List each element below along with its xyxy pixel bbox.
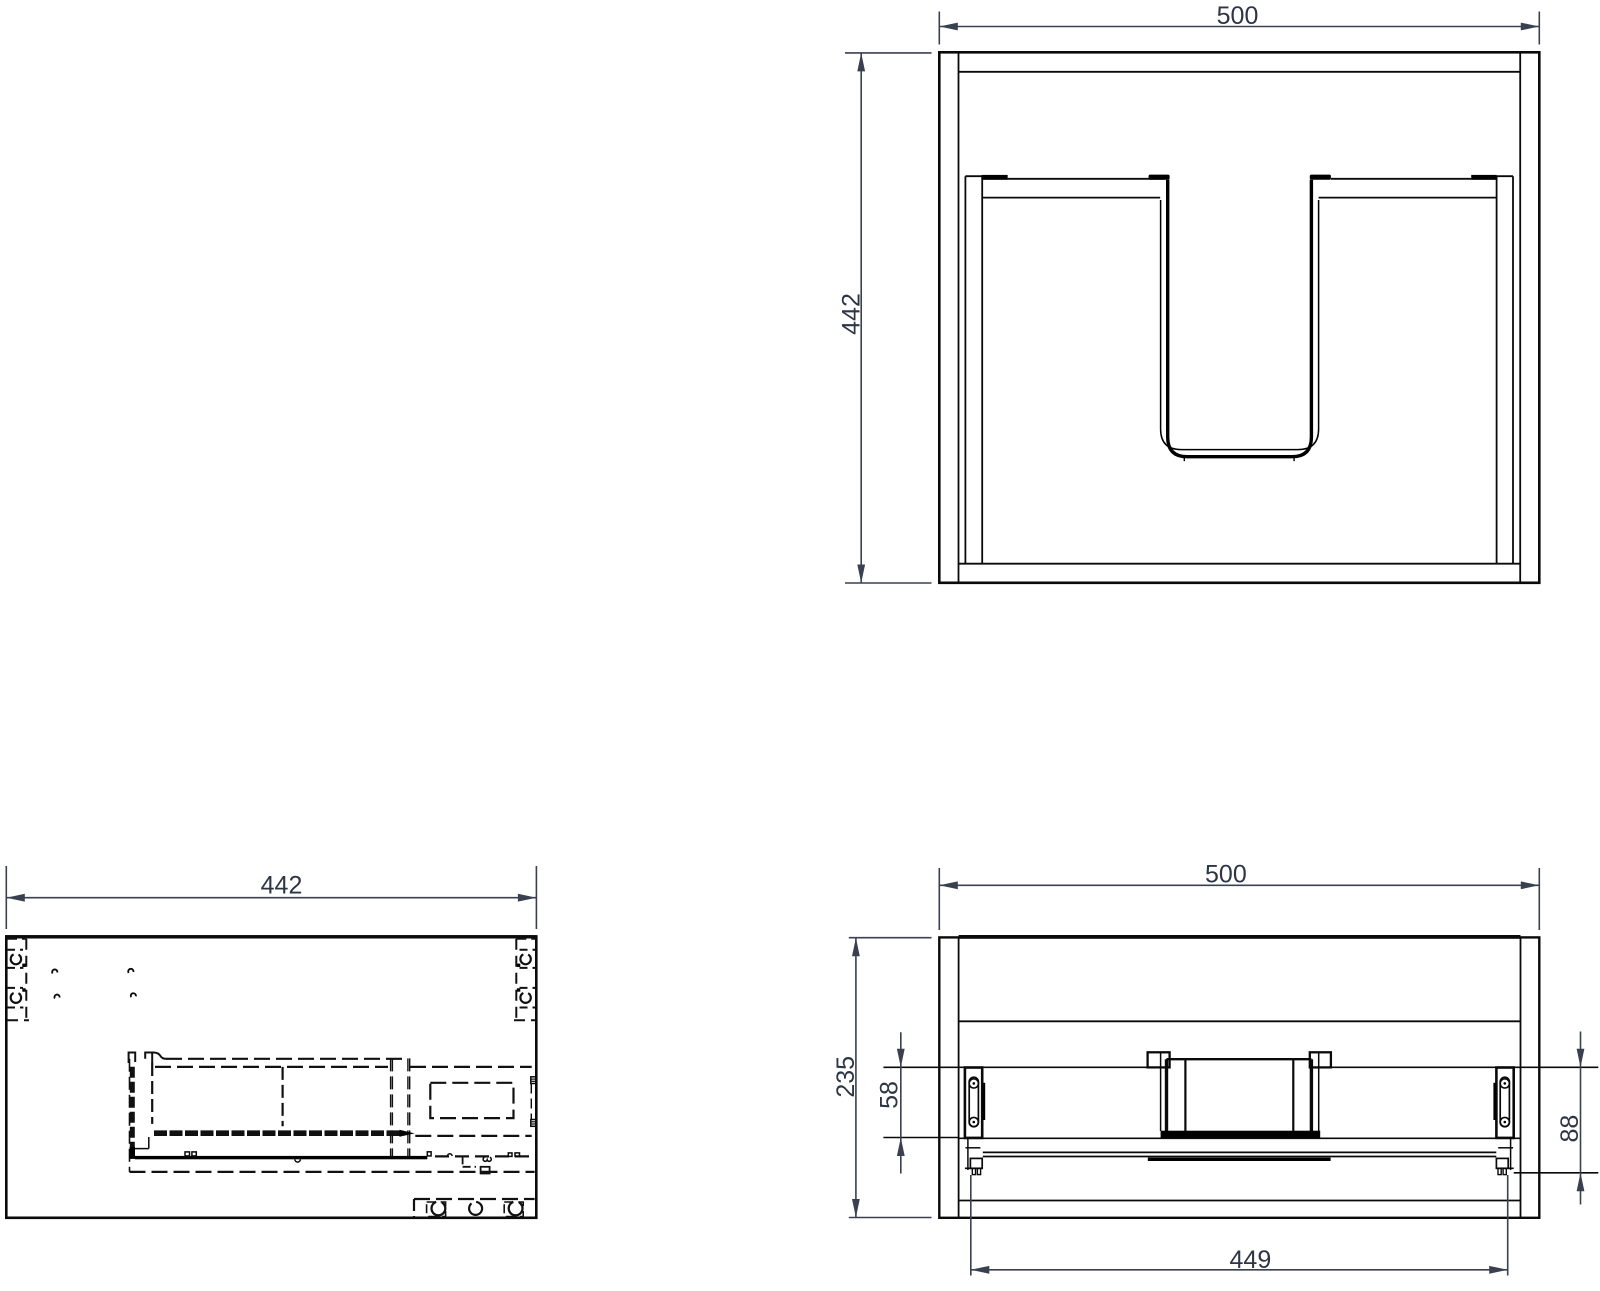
svg-text:442: 442 xyxy=(261,872,303,900)
svg-text:88: 88 xyxy=(1556,1115,1584,1143)
svg-text:442: 442 xyxy=(837,293,865,335)
svg-text:500: 500 xyxy=(1217,2,1259,30)
svg-text:500: 500 xyxy=(1205,861,1247,889)
svg-text:235: 235 xyxy=(832,1056,860,1098)
svg-text:449: 449 xyxy=(1230,1246,1272,1274)
svg-text:58: 58 xyxy=(875,1081,903,1109)
